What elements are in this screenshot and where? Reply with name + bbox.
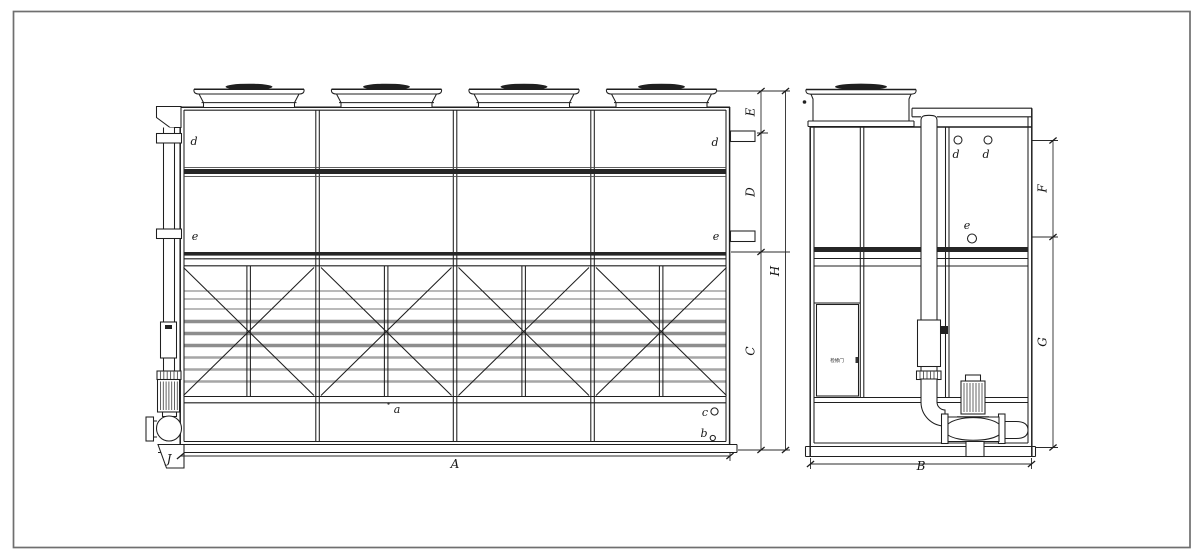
motor-cap: [966, 375, 981, 381]
outlet-nozzle-e: [731, 231, 756, 242]
pipe-bracket-upper: [157, 134, 182, 144]
pipe-flange-side: [917, 371, 942, 380]
fill-support-rail: [184, 252, 726, 256]
part-label-e-left: e: [192, 230, 199, 243]
access-door-label: 检修门: [830, 357, 844, 364]
part-label-c: c: [702, 406, 708, 419]
dim-label-B: B: [916, 459, 926, 473]
pump-pedestal: [966, 441, 984, 457]
part-label-e-right: e: [713, 230, 720, 243]
part-label-d2: d: [982, 148, 989, 161]
dim-label-A: A: [450, 457, 460, 471]
fan-bolt-marker: [803, 100, 807, 104]
pump-volute-front: [157, 416, 182, 441]
valve-box-mark: [941, 326, 948, 334]
drawing-canvas: d e d e a c b E D C H A J: [0, 0, 1200, 559]
inlet-nozzle-d: [731, 131, 756, 142]
dim-label-G: G: [1036, 337, 1050, 347]
point-a-marker: [387, 402, 389, 404]
dim-label-C: C: [744, 346, 758, 355]
pipe-cap: [921, 115, 937, 126]
pump-flange-front: [146, 417, 154, 441]
part-label-b: b: [700, 427, 707, 440]
dim-label-F: F: [1036, 184, 1050, 194]
pump-end-cap: [1005, 422, 1028, 439]
part-label-d-left: d: [190, 135, 197, 148]
sheet-border: [14, 12, 1191, 548]
part-label-d-right: d: [711, 136, 718, 149]
part-label-e-side: e: [964, 219, 971, 232]
door-handle: [856, 357, 859, 363]
coil-mid-band: [184, 169, 726, 174]
part-label-d1: d: [952, 148, 959, 161]
pipe-flange: [157, 371, 181, 380]
inline-valve-box: [918, 320, 941, 367]
pipe-bracket-lower: [157, 229, 182, 239]
fan-unit-side: [803, 84, 916, 127]
dim-label-E: E: [744, 107, 758, 117]
drawing-sheet: d e d e a c b E D C H A J: [0, 0, 1200, 559]
part-label-a: a: [394, 403, 401, 416]
dim-label-H: H: [768, 265, 782, 277]
component-mark: [165, 325, 172, 329]
pump-flange-left: [942, 414, 949, 444]
dim-label-D: D: [744, 187, 758, 198]
